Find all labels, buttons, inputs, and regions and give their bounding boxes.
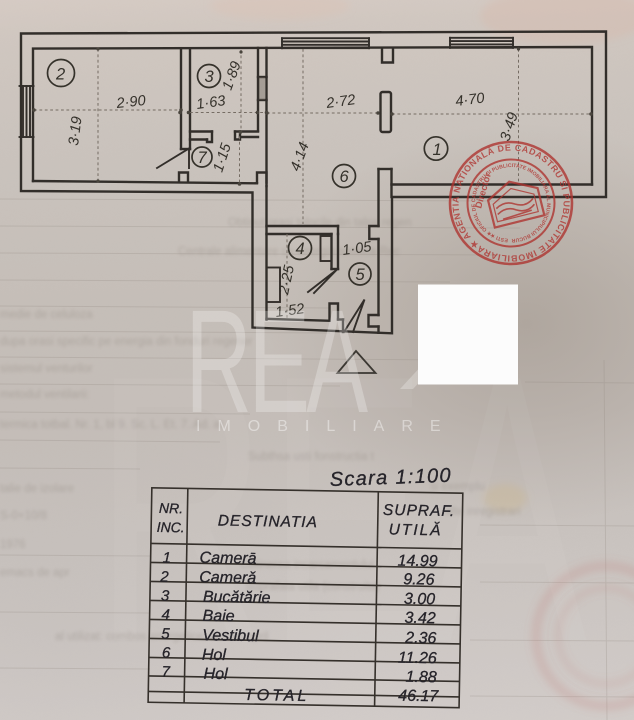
svg-text:INC.: INC. [157,519,185,535]
svg-text:Hol: Hol [203,666,228,683]
svg-text:7: 7 [161,663,170,680]
svg-text:2.36: 2.36 [404,630,437,648]
svg-text:1: 1 [433,141,442,159]
svg-text:3: 3 [161,587,170,604]
svg-text:6: 6 [162,644,171,661]
svg-text:SUPRAF.: SUPRAF. [383,502,455,520]
svg-text:1976: 1976 [0,539,26,551]
svg-text:DESTINATIA: DESTINATIA [218,512,318,531]
svg-text:2: 2 [55,66,65,84]
svg-text:3.00: 3.00 [404,591,436,609]
svg-text:9.26: 9.26 [403,571,435,589]
svg-text:TOTAL: TOTAL [244,687,309,705]
svg-text:Scara 1:100: Scara 1:100 [329,465,452,491]
svg-text:Bucătărie: Bucătărie [203,589,271,607]
svg-text:46.17: 46.17 [398,688,439,706]
svg-text:IMOBILIARE: IMOBILIARE [196,418,458,435]
svg-text:Camerā: Camerā [199,550,256,568]
svg-text:2: 2 [159,568,169,585]
svg-text:metodul ventilarii:: metodul ventilarii: [0,389,89,401]
svg-text:1.88: 1.88 [405,669,437,687]
svg-text:11.26: 11.26 [398,650,437,668]
svg-text:2·90: 2·90 [115,93,147,112]
svg-text:NR.: NR. [159,500,183,516]
svg-text:Baie: Baie [202,608,234,626]
svg-text:6: 6 [340,168,350,186]
svg-text:3.42: 3.42 [404,610,436,628]
svg-text:4: 4 [296,240,305,258]
svg-text:medie de celuloza: medie de celuloza [0,309,93,321]
svg-text:sistemul venturilor: sistemul venturilor [0,363,93,375]
svg-text:UTILĂ: UTILĂ [388,521,442,539]
svg-text:emacs de apr: emacs de apr [0,567,70,579]
svg-text:7: 7 [198,149,208,167]
svg-text:Hol: Hol [202,647,227,664]
svg-text:Camerǎ: Camerǎ [199,569,256,587]
svg-text:14.99: 14.99 [397,553,437,571]
svg-text:1: 1 [162,549,171,566]
svg-text:4: 4 [161,606,170,623]
svg-text:Vestibul: Vestibul [202,627,259,645]
svg-text:3: 3 [205,68,215,86]
svg-text:5: 5 [161,625,170,642]
svg-text:talie de izolare: talie de izolare [0,483,74,495]
svg-text:S-0+10/8: S-0+10/8 [0,510,47,522]
